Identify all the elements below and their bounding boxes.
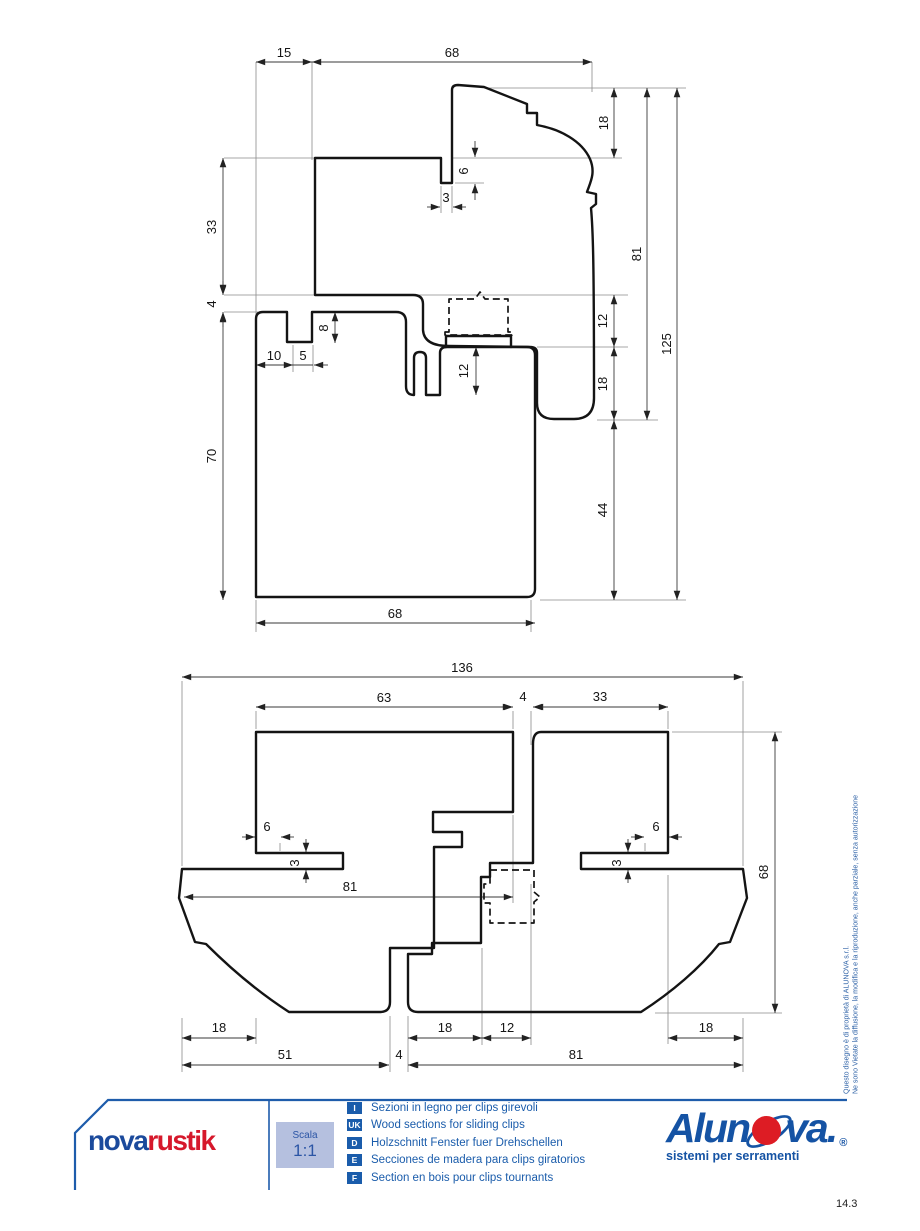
copyright-line-2: Ne sono Vietate la diffusione, la modifi… [852, 832, 861, 1094]
dim-label-4-bottom: 4 [395, 1047, 402, 1062]
dim-label-68-top: 68 [445, 45, 459, 60]
legend-text-uk: Wood sections for sliding clips [371, 1119, 525, 1131]
novarustik-logo: novarustik [88, 1127, 215, 1155]
scale-box: Scala 1:1 [276, 1122, 334, 1168]
sash-profile-right [408, 732, 747, 1012]
sash-profile-left [179, 732, 513, 1012]
dim-label-136: 136 [451, 660, 473, 675]
language-tag-it: I [347, 1102, 362, 1114]
dim-label-3: 3 [442, 190, 449, 205]
language-tag-de: D [347, 1137, 362, 1149]
sliding-clip-dashed-bottom [484, 870, 540, 923]
dim-label-15: 15 [277, 45, 291, 60]
dim-label-81-bottom: 81 [569, 1047, 583, 1062]
dim-label-18-left: 18 [212, 1020, 226, 1035]
planet-ball [752, 1116, 781, 1145]
dim-label-81: 81 [629, 247, 644, 261]
dim-label-6-right: 6 [652, 819, 659, 834]
scale-label: Scala [292, 1130, 317, 1141]
dim-label-6-left: 6 [263, 819, 270, 834]
saturn-planet-icon [749, 1110, 785, 1148]
novarustik-logo-nova: nova [88, 1125, 147, 1156]
legend-text-fr: Section en bois pour clips tournants [371, 1172, 553, 1184]
legend-row-es: E Secciones de madera para clips girator… [347, 1154, 585, 1167]
registered-mark-icon: ® [839, 1138, 845, 1149]
legend-text-it: Sezioni in legno per clips girevoli [371, 1102, 538, 1114]
dim-label-4: 4 [204, 300, 219, 307]
dimension-labels-bottom: 136 63 4 33 6 3 81 6 3 68 18 18 12 18 51… [212, 660, 771, 1062]
dim-label-33: 33 [593, 689, 607, 704]
dim-label-12: 12 [500, 1020, 514, 1035]
sill-profile-lower [256, 312, 535, 597]
alunova-logo: Alun va . ® sistemi per serramenti [666, 1108, 881, 1163]
dim-label-51: 51 [278, 1047, 292, 1062]
language-tag-es: E [347, 1154, 362, 1166]
technical-drawing-canvas: 15 68 18 6 3 33 4 8 10 5 12 12 18 81 125… [0, 0, 920, 1231]
language-legend: I Sezioni in legno per clips girevoli UK… [347, 1101, 585, 1184]
dim-label-12-right: 12 [595, 314, 610, 328]
dim-label-8: 8 [316, 324, 331, 331]
alunova-text-start: Alun [666, 1108, 749, 1149]
sliding-clip-dashed-top [445, 292, 512, 335]
legend-text-es: Secciones de madera para clips giratorio… [371, 1154, 585, 1166]
language-tag-fr: F [347, 1172, 362, 1184]
legend-text-de: Holzschnitt Fenster fuer Drehschellen [371, 1137, 563, 1149]
top-section-drawing: 15 68 18 6 3 33 4 8 10 5 12 12 18 81 125… [204, 45, 686, 632]
dim-label-18-right: 18 [699, 1020, 713, 1035]
dim-label-4-top: 4 [519, 689, 526, 704]
dim-label-68-right: 68 [756, 865, 771, 879]
legend-row-uk: UK Wood sections for sliding clips [347, 1119, 585, 1132]
language-tag-uk: UK [347, 1119, 362, 1131]
alunova-wordmark: Alun va . ® [666, 1108, 881, 1149]
dim-label-81-mid: 81 [343, 879, 357, 894]
dim-label-3-right: 3 [609, 859, 624, 866]
dim-label-125: 125 [659, 333, 674, 355]
bottom-section-drawing: 136 63 4 33 6 3 81 6 3 68 18 18 12 18 51… [179, 660, 782, 1072]
dim-label-70: 70 [204, 449, 219, 463]
dim-label-44: 44 [595, 503, 610, 517]
alunova-tagline: sistemi per serramenti [666, 1149, 881, 1163]
dim-label-33: 33 [204, 220, 219, 234]
novarustik-logo-rustik: rustik [147, 1125, 214, 1156]
legend-row-de: D Holzschnitt Fenster fuer Drehschellen [347, 1136, 585, 1149]
catalog-page: 15 68 18 6 3 33 4 8 10 5 12 12 18 81 125… [0, 0, 920, 1231]
dim-label-5: 5 [299, 348, 306, 363]
legend-row-fr: F Section en bois pour clips tournants [347, 1171, 585, 1184]
dim-label-6: 6 [456, 167, 471, 174]
legend-row-it: I Sezioni in legno per clips girevoli [347, 1101, 585, 1114]
alunova-text-end: va [785, 1108, 827, 1149]
dim-label-18-top: 18 [596, 116, 611, 130]
dim-label-3-left: 3 [287, 859, 302, 866]
dim-label-10: 10 [267, 348, 281, 363]
alunova-dot: . [827, 1108, 836, 1149]
dim-label-68-bottom: 68 [388, 606, 402, 621]
dim-label-12-mid: 12 [456, 364, 471, 378]
copyright-side-note: Questo disegno è di proprietà di ALUNOVA… [844, 832, 861, 1094]
page-number: 14.3 [836, 1198, 857, 1210]
copyright-line-1: Questo disegno è di proprietà di ALUNOVA… [844, 832, 853, 1094]
dimension-labels-top: 15 68 18 6 3 33 4 8 10 5 12 12 18 81 125… [204, 45, 674, 621]
dim-label-63: 63 [377, 690, 391, 705]
dim-label-18-mid: 18 [438, 1020, 452, 1035]
dim-label-18-right: 18 [595, 377, 610, 391]
dimension-lines-bottom [182, 677, 775, 1065]
scale-value: 1:1 [293, 1141, 317, 1161]
